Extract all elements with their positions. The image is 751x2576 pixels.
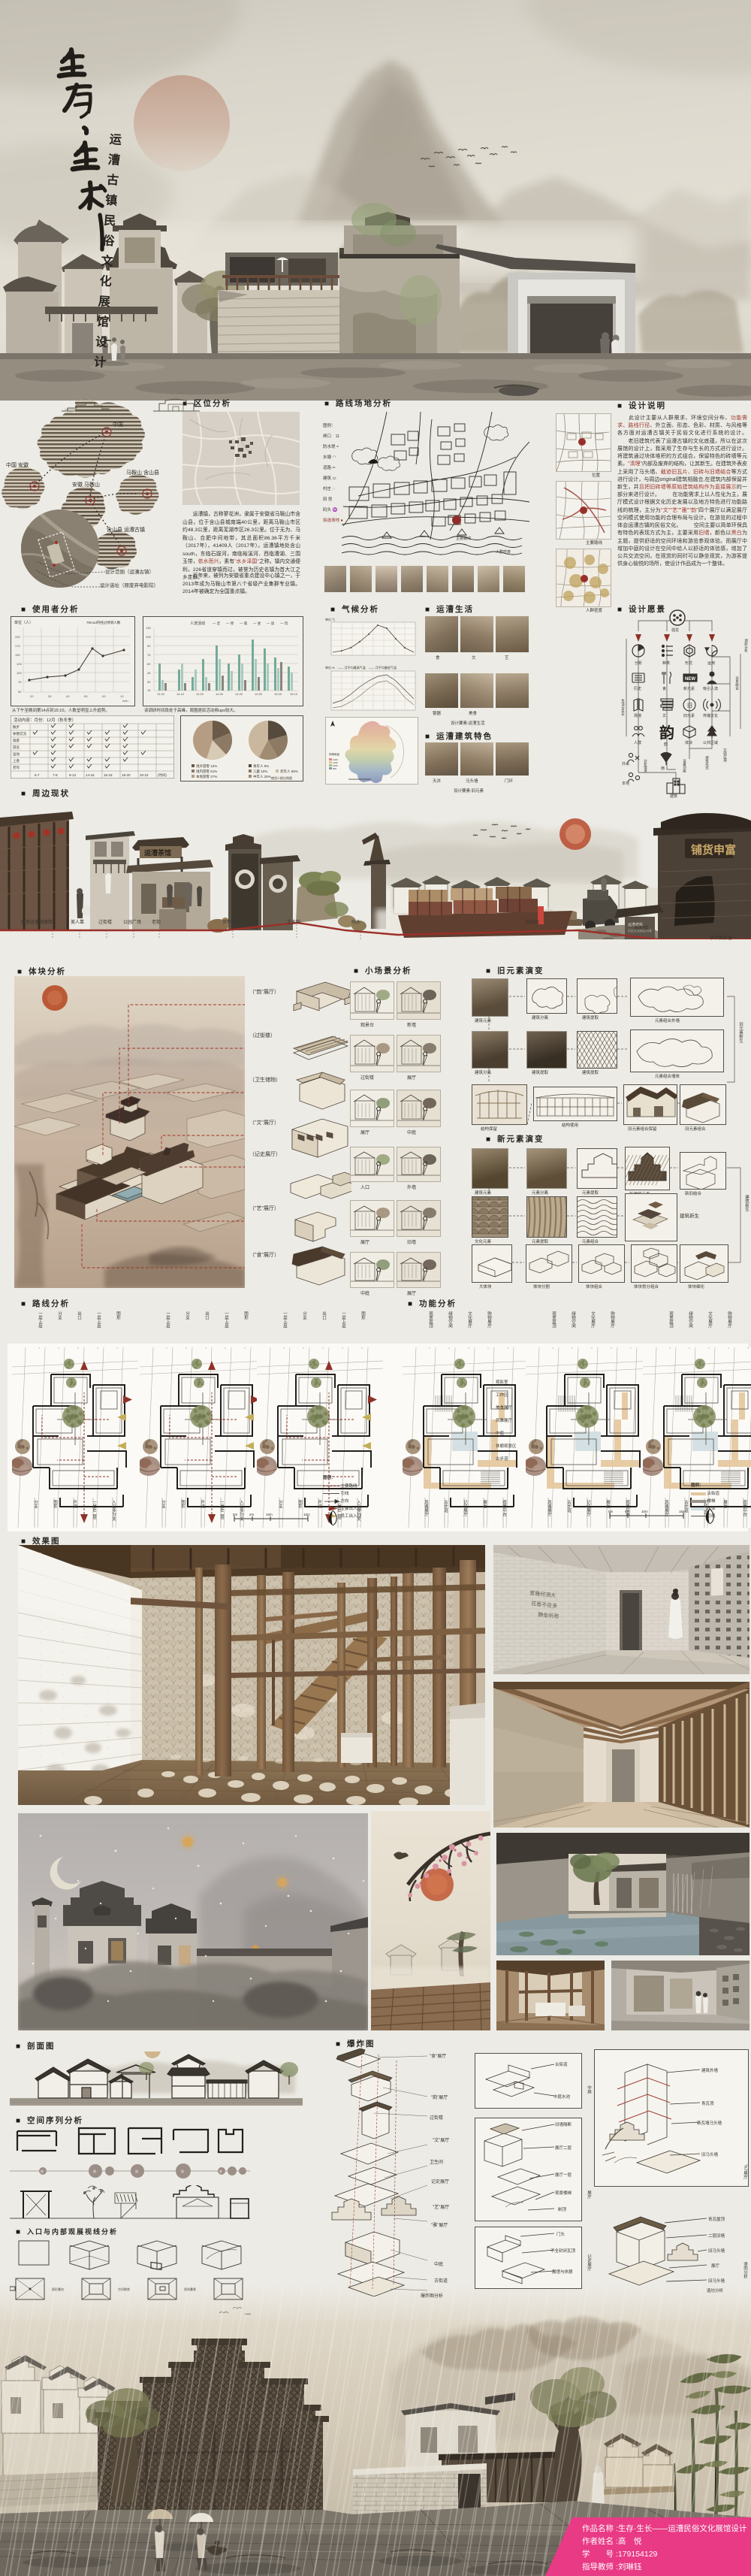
svg-text:青瓦顶: 青瓦顶 <box>701 2100 714 2106</box>
svg-text:古街道: 古街道 <box>555 2061 568 2067</box>
svg-text:展厅二层: 展厅二层 <box>555 2145 572 2151</box>
svg-text:建筑外墙: 建筑外墙 <box>701 2067 719 2073</box>
svg-text:收: 收 <box>41 2169 44 2173</box>
svg-text:展厅: 展厅 <box>711 2263 720 2269</box>
svg-text:造坊分析: 造坊分析 <box>707 2287 724 2293</box>
svg-text:放: 放 <box>135 2169 138 2173</box>
svg-text:旧墙隔断: 旧墙隔断 <box>555 2121 572 2127</box>
svg-text:中庭水池: 中庭水池 <box>553 2094 571 2100</box>
svg-text:不全封闭瓦顶: 不全封闭瓦顶 <box>550 2248 576 2254</box>
svg-text:展厅一层: 展厅一层 <box>555 2172 572 2178</box>
svg-text:二层旧墙: 二层旧墙 <box>708 2233 725 2239</box>
svg-text:15m: 15m <box>303 1513 310 1516</box>
svg-text:5m: 5m <box>625 1510 630 1513</box>
svg-text:空间聚焦: 空间聚焦 <box>118 2287 130 2291</box>
svg-text:放: 放 <box>93 2169 96 2173</box>
svg-text:旧马头墙: 旧马头墙 <box>708 2278 725 2284</box>
svg-text:制顶: 制顶 <box>558 2206 567 2212</box>
svg-text:观景楼梯: 观景楼梯 <box>555 2190 572 2196</box>
svg-text:图形叠加: 图形叠加 <box>52 2287 64 2291</box>
svg-text:展馆与休憩: 展馆与休憩 <box>552 2269 573 2275</box>
svg-text:门头: 门头 <box>556 2231 566 2237</box>
svg-text:收: 收 <box>219 2169 222 2173</box>
svg-text:新瓦墙马头墙: 新瓦墙马头墙 <box>697 2120 722 2126</box>
svg-text:旧马头墙: 旧马头墙 <box>708 2248 725 2254</box>
svg-text:青瓦屋顶: 青瓦屋顶 <box>708 2216 725 2222</box>
svg-text:放: 放 <box>181 2169 184 2173</box>
svg-text:15m: 15m <box>679 1510 686 1513</box>
svg-text:10m: 10m <box>641 1510 648 1513</box>
svg-text:2m: 2m <box>249 1513 255 1516</box>
svg-text:旧马头墙: 旧马头墙 <box>701 2151 719 2157</box>
svg-text:0m: 0m <box>233 1513 238 1516</box>
svg-text:0m: 0m <box>608 1510 614 1513</box>
svg-text:视线叠景: 视线叠景 <box>184 2287 196 2291</box>
svg-text:10m: 10m <box>266 1513 273 1516</box>
